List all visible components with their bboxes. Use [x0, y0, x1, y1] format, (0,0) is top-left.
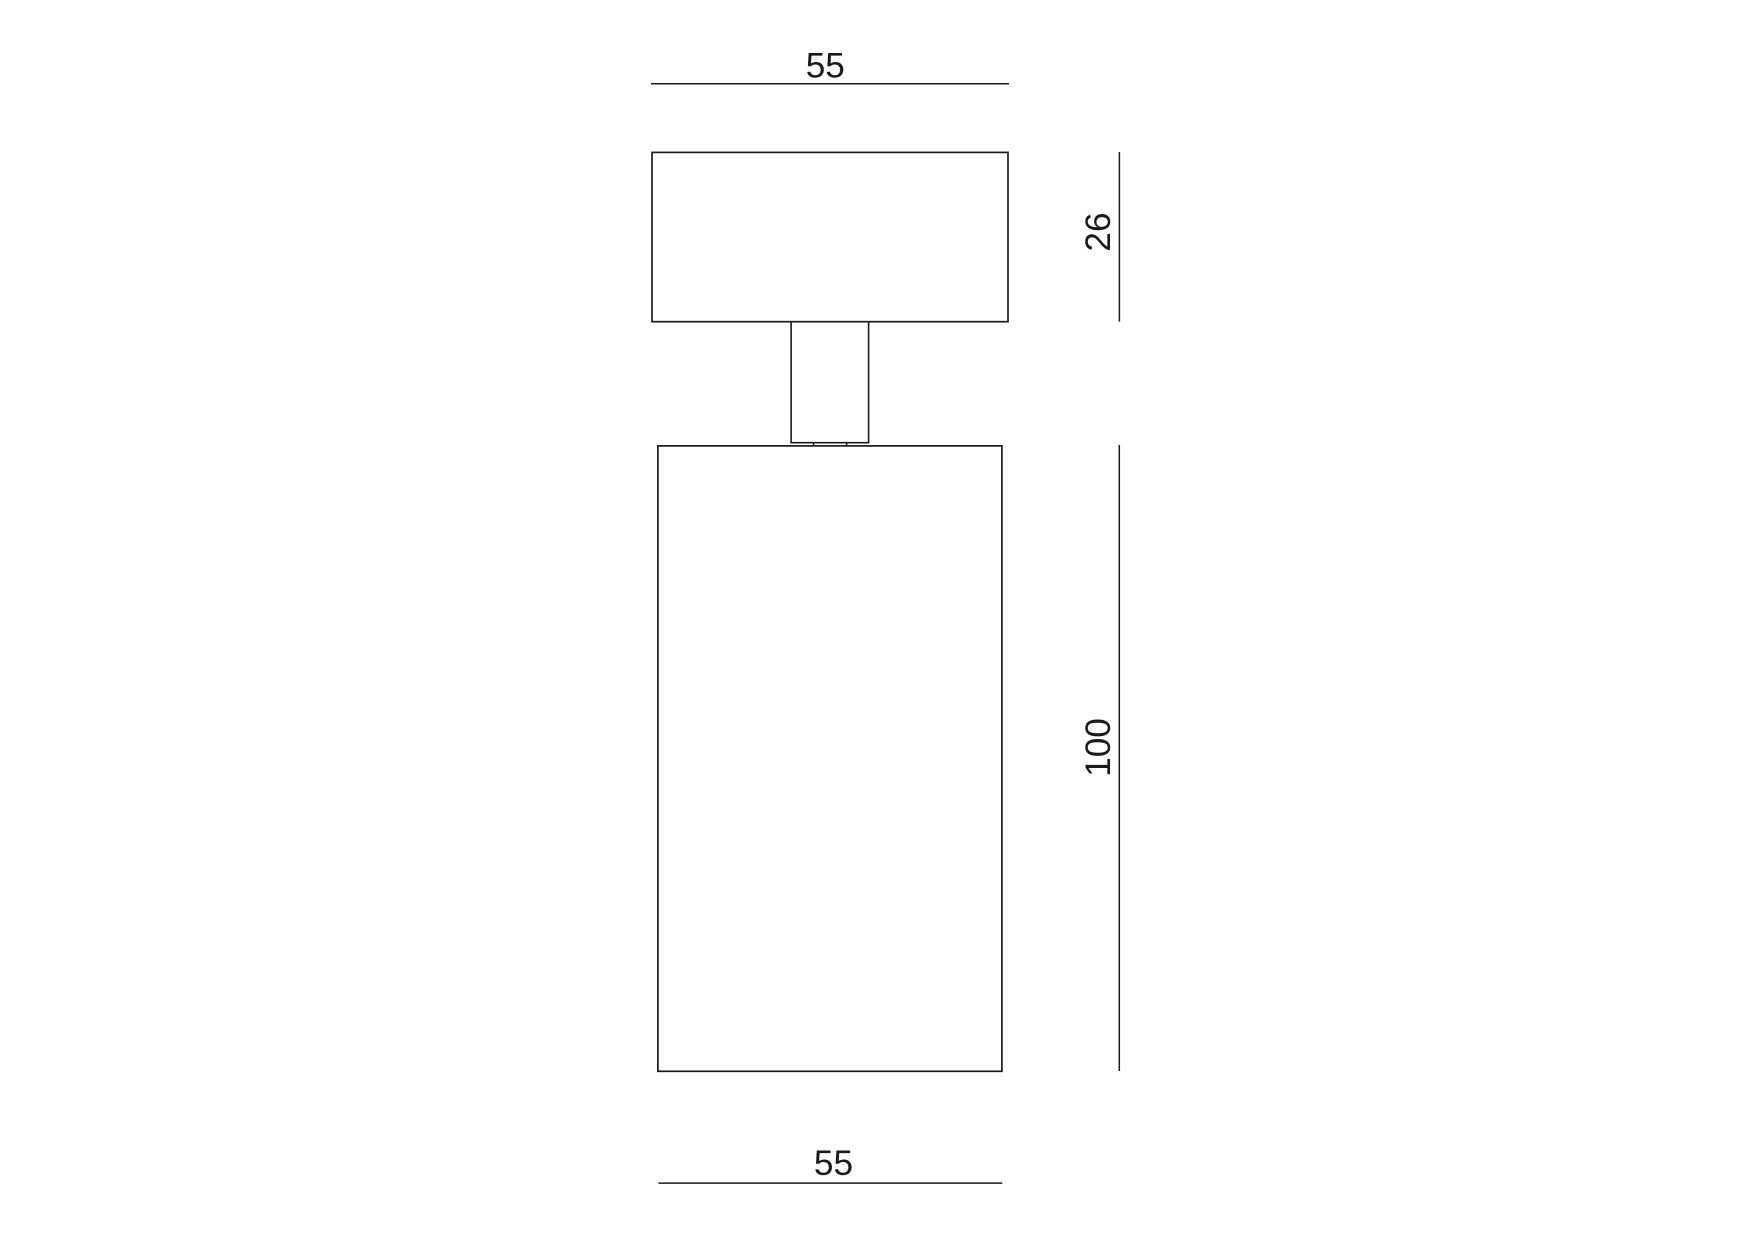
svg-text:26: 26 [1079, 212, 1118, 251]
svg-text:55: 55 [806, 47, 845, 86]
svg-text:55: 55 [814, 1144, 853, 1183]
svg-text:100: 100 [1079, 718, 1118, 777]
